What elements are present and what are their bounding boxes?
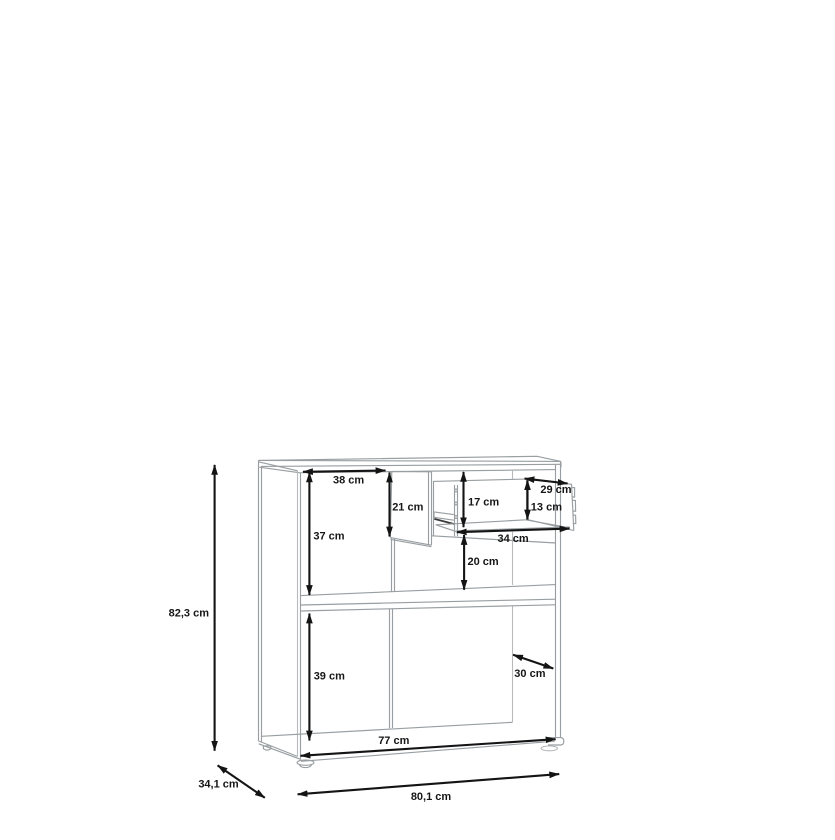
svg-text:37 cm: 37 cm [313, 530, 344, 542]
svg-text:29 cm: 29 cm [540, 484, 571, 496]
svg-text:82,3 cm: 82,3 cm [169, 608, 210, 620]
svg-text:38 cm: 38 cm [333, 475, 364, 487]
svg-text:30 cm: 30 cm [514, 668, 545, 680]
svg-text:34,1 cm: 34,1 cm [198, 779, 239, 791]
svg-text:34 cm: 34 cm [497, 533, 528, 545]
svg-text:21 cm: 21 cm [392, 502, 423, 514]
svg-text:17 cm: 17 cm [468, 496, 499, 508]
svg-text:77 cm: 77 cm [378, 735, 409, 747]
svg-text:13 cm: 13 cm [531, 502, 562, 514]
svg-text:80,1 cm: 80,1 cm [411, 791, 452, 803]
svg-text:20 cm: 20 cm [468, 556, 499, 568]
svg-text:39 cm: 39 cm [314, 670, 345, 682]
